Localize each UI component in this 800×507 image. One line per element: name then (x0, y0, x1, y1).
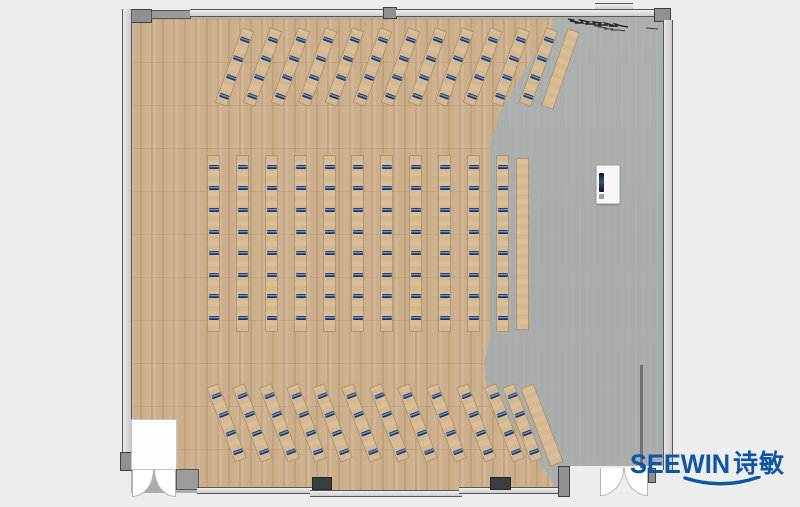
workstation-marker-icon (381, 411, 392, 418)
workstation-marker-icon (335, 74, 346, 81)
middle-desk-columns-desk (351, 155, 364, 332)
middle-desk-columns-desk (438, 155, 451, 332)
wall-corner-piece (176, 469, 199, 490)
workstation-marker-icon (296, 186, 306, 190)
middle-desk-columns-side-table (516, 158, 529, 330)
workstation-marker-icon (353, 273, 363, 277)
middle-desk-columns-desk (380, 155, 393, 332)
workstation-marker-icon (302, 93, 313, 100)
workstation-marker-icon (498, 294, 508, 298)
workstation-marker-icon (529, 74, 540, 81)
workstation-marker-icon (445, 74, 456, 81)
workstation-marker-icon (325, 230, 335, 234)
workstation-marker-icon (514, 411, 525, 418)
workstation-marker-icon (296, 316, 306, 320)
middle-desk-columns-desk (323, 155, 336, 332)
workstation-marker-icon (469, 186, 479, 190)
workstation-marker-icon (388, 430, 399, 437)
workstation-marker-icon (498, 165, 508, 169)
workstation-marker-icon (295, 36, 306, 43)
workstation-marker-icon (405, 36, 416, 43)
workstation-marker-icon (209, 273, 219, 277)
workstation-marker-icon (349, 36, 360, 43)
workstation-marker-icon (238, 273, 248, 277)
workstation-marker-icon (288, 55, 299, 62)
workstation-marker-icon (412, 93, 423, 100)
workstation-marker-icon (209, 251, 219, 255)
workstation-marker-icon (510, 448, 521, 455)
workstation-marker-icon (296, 294, 306, 298)
workstation-marker-icon (322, 36, 333, 43)
workstation-marker-icon (445, 430, 456, 437)
workstation-marker-icon (385, 93, 396, 100)
workstation-marker-icon (353, 165, 363, 169)
workstation-marker-icon (267, 251, 277, 255)
structural-pillar-a (312, 477, 332, 490)
workstation-marker-icon (489, 392, 500, 399)
workstation-marker-icon (391, 74, 402, 81)
workstation-marker-icon (296, 251, 306, 255)
workstation-marker-icon (469, 208, 479, 212)
workstation-marker-icon (363, 74, 374, 81)
workstation-marker-icon (482, 448, 493, 455)
workstation-marker-icon (315, 55, 326, 62)
workstation-marker-icon (439, 93, 450, 100)
workstation-marker-icon (377, 36, 388, 43)
podium-screen-icon (599, 173, 604, 192)
workstation-marker-icon (452, 448, 463, 455)
workstation-marker-icon (225, 430, 236, 437)
workstation-marker-icon (305, 430, 316, 437)
workstation-marker-icon (382, 294, 392, 298)
workstation-marker-icon (461, 392, 472, 399)
workstation-marker-icon (232, 55, 243, 62)
workstation-marker-icon (260, 55, 271, 62)
workstation-marker-icon (367, 448, 378, 455)
workstation-marker-icon (338, 448, 349, 455)
workstation-marker-icon (498, 208, 508, 212)
workstation-marker-icon (238, 251, 248, 255)
workstation-marker-icon (382, 208, 392, 212)
right-glass-wall (663, 20, 673, 470)
workstation-marker-icon (267, 208, 277, 212)
workstation-marker-icon (317, 392, 328, 399)
workstation-marker-icon (353, 230, 363, 234)
workstation-marker-icon (209, 186, 219, 190)
workstation-marker-icon (469, 251, 479, 255)
workstation-marker-icon (342, 55, 353, 62)
workstation-marker-icon (267, 294, 277, 298)
top-wall-mullion (383, 7, 397, 19)
workstation-marker-icon (209, 165, 219, 169)
workstation-marker-icon (296, 208, 306, 212)
workstation-marker-icon (325, 273, 335, 277)
workstation-marker-icon (258, 448, 269, 455)
workstation-marker-icon (325, 186, 335, 190)
workstation-marker-icon (496, 411, 507, 418)
workstation-marker-icon (360, 430, 371, 437)
workstation-marker-icon (411, 251, 421, 255)
workstation-marker-icon (508, 55, 519, 62)
workstation-marker-icon (253, 74, 264, 81)
workstation-marker-icon (267, 230, 277, 234)
workstation-marker-icon (285, 448, 296, 455)
workstation-marker-icon (325, 251, 335, 255)
workstation-marker-icon (469, 230, 479, 234)
top-wall-left-segment (151, 10, 191, 19)
workstation-marker-icon (267, 36, 278, 43)
workstation-marker-icon (536, 55, 547, 62)
workstation-marker-icon (425, 55, 436, 62)
workstation-marker-icon (418, 74, 429, 81)
left-glass-wall (122, 9, 132, 459)
workstation-marker-icon (423, 448, 434, 455)
workstation-marker-icon (296, 165, 306, 169)
workstation-marker-icon (411, 273, 421, 277)
workstation-marker-icon (267, 273, 277, 277)
brand-cjk-name: 诗敏 (733, 452, 785, 477)
workstation-marker-icon (487, 36, 498, 43)
workstation-marker-icon (312, 448, 323, 455)
workstation-marker-icon (278, 430, 289, 437)
furniture-layer (0, 0, 800, 507)
presenter-podium (596, 165, 620, 204)
workstation-marker-icon (382, 273, 392, 277)
middle-desk-columns-desk (409, 155, 422, 332)
workstation-marker-icon (209, 294, 219, 298)
podium-base (599, 194, 604, 199)
workstation-marker-icon (209, 208, 219, 212)
workstation-marker-icon (440, 208, 450, 212)
workstation-marker-icon (473, 74, 484, 81)
workstation-marker-icon (411, 294, 421, 298)
workstation-marker-icon (353, 208, 363, 212)
workstation-marker-icon (398, 55, 409, 62)
workstation-marker-icon (382, 251, 392, 255)
workstation-marker-icon (357, 93, 368, 100)
workstation-marker-icon (267, 316, 277, 320)
workstation-marker-icon (440, 294, 450, 298)
workstation-marker-icon (370, 55, 381, 62)
workstation-marker-icon (291, 392, 302, 399)
floor-plan: SEEWIN 诗敏 (0, 0, 800, 507)
workstation-marker-icon (237, 392, 248, 399)
brand-swoosh-icon (682, 476, 762, 490)
workstation-marker-icon (325, 294, 335, 298)
workstation-marker-icon (218, 411, 229, 418)
workstation-marker-icon (382, 186, 392, 190)
workstation-marker-icon (440, 251, 450, 255)
workstation-marker-icon (438, 411, 449, 418)
workstation-marker-icon (411, 230, 421, 234)
workstation-marker-icon (264, 392, 275, 399)
workstation-marker-icon (431, 392, 442, 399)
workstation-marker-icon (507, 392, 518, 399)
workstation-marker-icon (469, 294, 479, 298)
workstation-marker-icon (440, 165, 450, 169)
brand-logo: SEEWIN 诗敏 (630, 450, 800, 495)
workstation-marker-icon (459, 36, 470, 43)
bottom-window-segment-a (197, 487, 313, 494)
workstation-marker-icon (232, 448, 243, 455)
workstation-marker-icon (411, 186, 421, 190)
workstation-marker-icon (543, 36, 554, 43)
workstation-marker-icon (298, 411, 309, 418)
workstation-marker-icon (495, 93, 506, 100)
workstation-marker-icon (416, 430, 427, 437)
workstation-marker-icon (411, 208, 421, 212)
workstation-marker-icon (247, 93, 258, 100)
structural-pillar-b (490, 477, 511, 490)
middle-desk-columns-desk (496, 155, 509, 332)
workstation-marker-icon (411, 316, 421, 320)
workstation-marker-icon (521, 430, 532, 437)
workstation-marker-icon (244, 411, 255, 418)
workstation-marker-icon (440, 230, 450, 234)
workstation-marker-icon (523, 93, 534, 100)
middle-desk-columns-desk (265, 155, 278, 332)
top-window-left (190, 9, 384, 17)
workstation-marker-icon (329, 93, 340, 100)
workstation-marker-icon (219, 93, 230, 100)
workstation-marker-icon (225, 74, 236, 81)
workstation-marker-icon (452, 55, 463, 62)
workstation-marker-icon (395, 448, 406, 455)
workstation-marker-icon (402, 392, 413, 399)
workstation-marker-icon (467, 93, 478, 100)
workstation-marker-icon (440, 186, 450, 190)
workstation-marker-icon (501, 74, 512, 81)
workstation-marker-icon (238, 316, 248, 320)
annotation-scribble (566, 13, 666, 33)
workstation-marker-icon (353, 251, 363, 255)
workstation-marker-icon (308, 74, 319, 81)
workstation-marker-icon (475, 430, 486, 437)
workstation-marker-icon (251, 430, 262, 437)
workstation-marker-icon (374, 392, 385, 399)
workstation-marker-icon (469, 273, 479, 277)
workstation-marker-icon (324, 411, 335, 418)
workstation-marker-icon (238, 230, 248, 234)
workstation-marker-icon (296, 230, 306, 234)
right-door-post (558, 466, 570, 497)
workstation-marker-icon (239, 36, 250, 43)
workstation-marker-icon (353, 186, 363, 190)
workstation-marker-icon (238, 165, 248, 169)
workstation-marker-icon (440, 316, 450, 320)
workstation-marker-icon (238, 294, 248, 298)
workstation-marker-icon (498, 251, 508, 255)
vestibule-recess (131, 419, 177, 470)
workstation-marker-icon (480, 55, 491, 62)
middle-desk-columns-desk (207, 155, 220, 332)
workstation-marker-icon (382, 316, 392, 320)
workstation-marker-icon (409, 411, 420, 418)
workstation-marker-icon (267, 186, 277, 190)
workstation-marker-icon (331, 430, 342, 437)
workstation-marker-icon (325, 165, 335, 169)
workstation-marker-icon (440, 273, 450, 277)
workstation-marker-icon (468, 411, 479, 418)
workstation-marker-icon (503, 430, 514, 437)
workstation-marker-icon (211, 392, 222, 399)
workstation-marker-icon (281, 74, 292, 81)
middle-desk-columns-desk (294, 155, 307, 332)
workstation-marker-icon (432, 36, 443, 43)
workstation-marker-icon (353, 411, 364, 418)
workstation-marker-icon (267, 165, 277, 169)
workstation-marker-icon (498, 186, 508, 190)
workstation-marker-icon (469, 316, 479, 320)
bottom-window-segment-b (310, 490, 462, 497)
workstation-marker-icon (353, 316, 363, 320)
workstation-marker-icon (296, 273, 306, 277)
workstation-marker-icon (382, 230, 392, 234)
workstation-marker-icon (411, 165, 421, 169)
workstation-marker-icon (498, 230, 508, 234)
workstation-marker-icon (346, 392, 357, 399)
middle-desk-columns-desk (236, 155, 249, 332)
workstation-marker-icon (498, 316, 508, 320)
workstation-marker-icon (209, 230, 219, 234)
workstation-marker-icon (515, 36, 526, 43)
workstation-marker-icon (353, 294, 363, 298)
workstation-marker-icon (325, 316, 335, 320)
workstation-marker-icon (275, 93, 286, 100)
workstation-marker-icon (238, 186, 248, 190)
workstation-marker-icon (382, 165, 392, 169)
workstation-marker-icon (238, 208, 248, 212)
workstation-marker-icon (498, 273, 508, 277)
middle-desk-columns-desk (467, 155, 480, 332)
workstation-marker-icon (325, 208, 335, 212)
workstation-marker-icon (209, 316, 219, 320)
workstation-marker-icon (528, 448, 539, 455)
corner-post-top-left (131, 9, 152, 23)
brand-wordmark: SEEWIN (630, 452, 730, 476)
workstation-marker-icon (271, 411, 282, 418)
workstation-marker-icon (469, 165, 479, 169)
